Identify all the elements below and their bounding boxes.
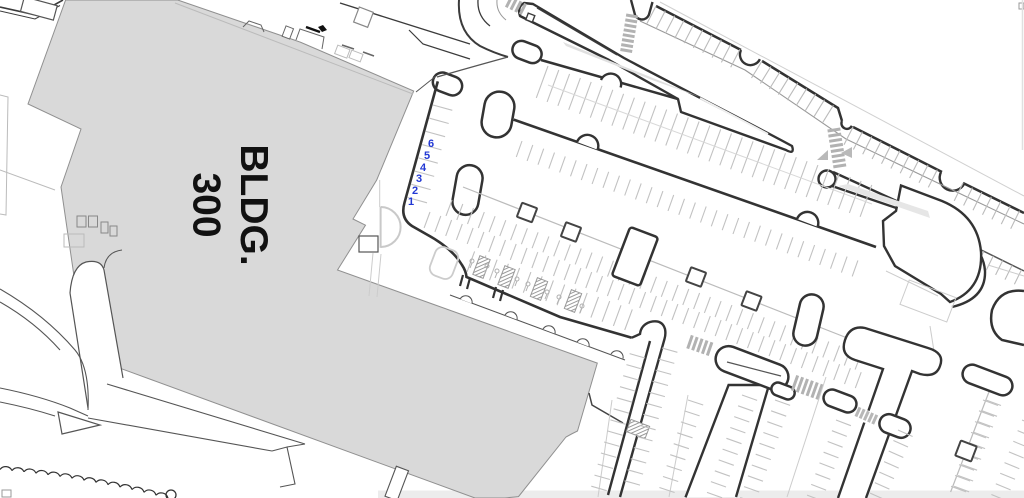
svg-text:300: 300 <box>185 172 228 237</box>
svg-text:BLDG.: BLDG. <box>232 144 275 265</box>
svg-text:1: 1 <box>408 196 414 208</box>
svg-text:3: 3 <box>416 173 422 185</box>
svg-text:6: 6 <box>428 138 434 150</box>
svg-text:5: 5 <box>424 150 430 162</box>
